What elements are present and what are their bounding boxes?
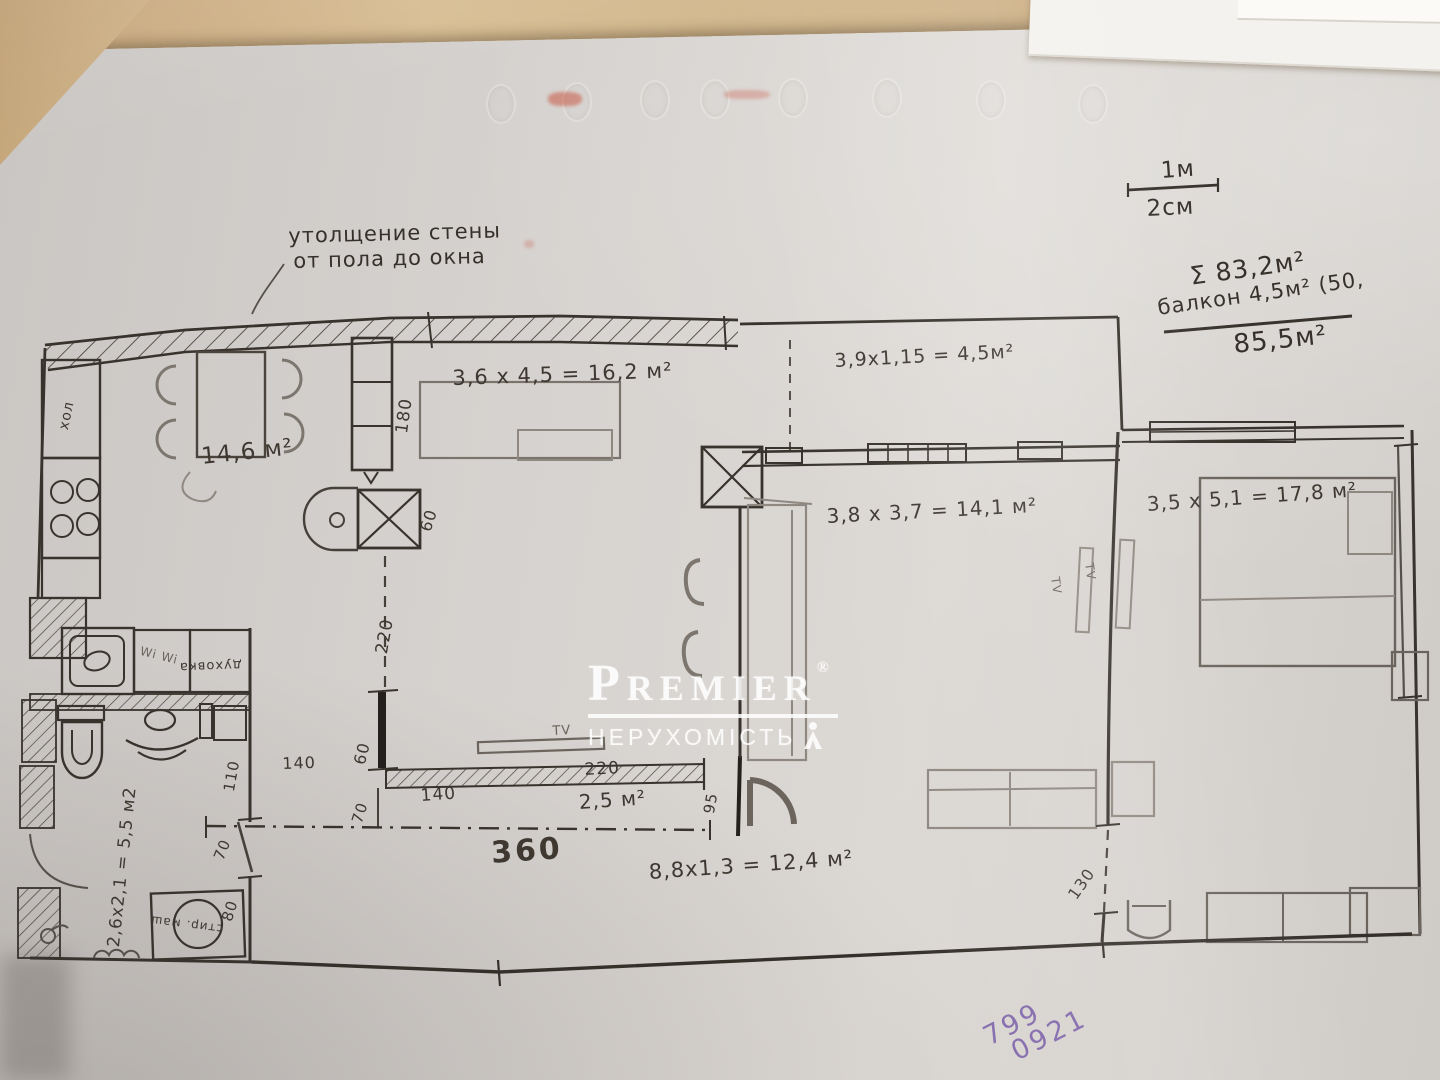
oven-label-rotated: духовка [179,657,242,674]
premier-brand: Premier [588,655,817,712]
bedroom-cabinet-small [1112,762,1154,816]
wall-note-line2: от пола до окна [293,244,486,273]
nightstand [1392,652,1428,700]
registered-mark-icon: ® [817,659,829,676]
room1-bottom-sofa [928,770,1096,828]
watermark-divider [588,714,838,718]
toilet [58,706,104,778]
balcony [740,317,1122,466]
dim-360: 360 [490,831,564,871]
column-x-1 [358,490,420,548]
living-wardrobe [420,382,620,460]
closet-area: 2,5 м² [578,785,647,814]
premier-watermark: Premier® НЕРУХОМІСТЬ [588,658,858,755]
tv-label-living: TV [552,723,572,739]
scale-top: 1м [1160,156,1196,184]
premier-subtitle: НЕРУХОМІСТЬ [588,724,796,751]
premier-logo-text: Premier® [588,658,858,710]
premier-person-icon [800,721,826,755]
dim-140a: 140 [420,784,457,806]
note-leader-line [252,264,284,314]
dining-table [157,352,303,501]
shelf-wall [352,338,392,483]
dim-220b: 220 [584,758,620,780]
scale-bottom: 2см [1146,194,1195,222]
tv-label-bedroom: TV [1082,562,1098,581]
tv-stand-living [478,738,604,753]
room1-door-symbol [750,780,794,826]
dim-140b: 140 [282,753,316,773]
photo-of-floor-plan: утолщение стены от пола до окна 1м 2см Σ… [0,0,1440,1080]
floor-plan-drawing [0,0,1440,1080]
wall-stub-60 [368,690,398,770]
kitchen-peninsula [304,488,358,550]
bathroom-sink [126,704,246,760]
dim-95: 95 [700,791,721,815]
hall-dashed-line-360 [206,816,710,840]
room1-bedroom-wall [1094,432,1120,942]
left-wall-kitchen-counter [30,348,100,658]
tv-stands-on-wall [1076,540,1134,633]
tv-label-room1: TV [1048,576,1064,595]
